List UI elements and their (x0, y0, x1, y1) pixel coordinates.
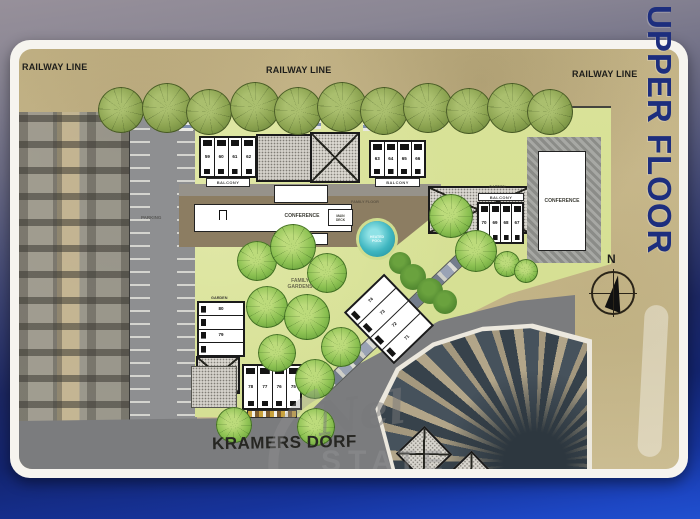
unit-number: 78 (248, 385, 253, 390)
unit-number: 80 (218, 307, 223, 312)
bush-icon (433, 290, 457, 314)
unit-number: 66 (415, 157, 420, 162)
main-deck-label: MAIN DECK (336, 214, 345, 222)
tree-icon (98, 87, 144, 133)
unit-80: 80 (199, 303, 243, 316)
watermark-block-text: STATE (321, 445, 450, 469)
unit-60: 60 (215, 138, 229, 176)
conference-room-east: CONFERENCE (538, 151, 586, 251)
sand-track (637, 304, 669, 457)
unit-number: 74 (368, 297, 375, 304)
family-floor-label: FAMILY FLOOR (351, 200, 379, 204)
unit-number: 73 (380, 309, 387, 316)
balcony-label-strip: BALCONY (478, 193, 524, 201)
garden-label: GARDEN (211, 296, 227, 300)
unit-number: 64 (388, 157, 393, 162)
conference-label: CONFERENCE (277, 214, 327, 220)
unit-number: 68 (503, 221, 508, 226)
tree-icon (246, 286, 288, 328)
unit-61: 61 (229, 138, 243, 176)
tree-icon (455, 230, 497, 272)
compass-icon (591, 271, 635, 315)
unit-number: 67 (514, 221, 519, 226)
tree-icon (284, 294, 330, 340)
conference-label: CONFERENCE (544, 198, 579, 204)
plan-card: 59 60 61 62 BALCONY 63 64 65 66 BALCONY … (10, 40, 688, 478)
unit-cell (199, 343, 243, 355)
unit-66: 66 (412, 142, 425, 176)
unit-64: 64 (385, 142, 399, 176)
tree-icon (527, 89, 573, 135)
main-deck-room: MAIN DECK (328, 209, 353, 226)
unit-number: 61 (232, 155, 237, 160)
flat-roof-building (256, 134, 312, 182)
tree-icon (446, 88, 492, 134)
unit-59: 59 (201, 138, 215, 176)
screenshot-frame: 59 60 61 62 BALCONY 63 64 65 66 BALCONY … (0, 0, 700, 519)
railway-line-label-left: RAILWAY LINE (22, 62, 87, 72)
unit-62: 62 (242, 138, 255, 176)
unit-76: 76 (273, 366, 287, 408)
unit-block-79-80: 80 79 (197, 301, 245, 357)
compass-north-label: N (607, 253, 616, 267)
unit-number: 60 (219, 155, 224, 160)
unit-number: 71 (404, 334, 411, 341)
hip-roof-building (310, 132, 360, 183)
unit-number: 70 (481, 221, 486, 226)
unit-number: 59 (205, 155, 210, 160)
unit-67: 67 (512, 204, 522, 242)
family-gardens-label: FAMILY GARDENS (279, 279, 321, 291)
aerial-photo-left-strip (19, 112, 131, 434)
tree-icon (274, 87, 322, 135)
unit-number: 62 (246, 155, 251, 160)
unit-79: 79 (199, 330, 243, 343)
unit-block-59-62: 59 60 61 62 (199, 136, 257, 178)
stair-icon (219, 210, 227, 220)
parking-label: PARKING (141, 215, 161, 220)
tree-icon (360, 87, 408, 135)
balcony-label-strip: BALCONY (375, 178, 420, 187)
unit-number: 65 (402, 157, 407, 162)
unit-65: 65 (398, 142, 412, 176)
unit-number: 77 (262, 385, 267, 390)
tree-icon (142, 83, 192, 133)
site-plan-map: 59 60 61 62 BALCONY 63 64 65 66 BALCONY … (19, 49, 679, 469)
garden-label: GARDEN (489, 185, 505, 189)
unit-number: 63 (375, 157, 380, 162)
unit-number: 76 (277, 385, 282, 390)
balcony-label-strip: BALCONY (206, 178, 250, 187)
unit-number: 79 (218, 333, 223, 338)
lobby-upper-room (274, 185, 328, 203)
unit-68: 68 (501, 204, 512, 242)
tree-icon (258, 334, 296, 372)
tree-icon (321, 327, 361, 367)
unit-number: 69 (492, 221, 497, 226)
page-title-upper-floor: UPPER FLOOR (640, 5, 678, 295)
heated-pool: HEATED POOL (359, 221, 395, 257)
unit-77: 77 (258, 366, 272, 408)
tree-icon (230, 82, 280, 132)
compass-needle (603, 274, 626, 313)
parking-lot (129, 115, 197, 437)
unit-63: 63 (371, 142, 385, 176)
railway-line-label-right: RAILWAY LINE (572, 69, 637, 79)
unit-block-63-66: 63 64 65 66 (369, 140, 426, 178)
unit-78: 78 (244, 366, 258, 408)
unit-number: 72 (392, 322, 399, 329)
heated-pool-label: HEATED POOL (370, 235, 384, 243)
paved-terrace (191, 366, 237, 408)
railway-line-label-center: RAILWAY LINE (266, 65, 331, 75)
unit-cell (199, 316, 243, 329)
tree-icon (186, 89, 232, 135)
tree-icon (514, 259, 538, 283)
